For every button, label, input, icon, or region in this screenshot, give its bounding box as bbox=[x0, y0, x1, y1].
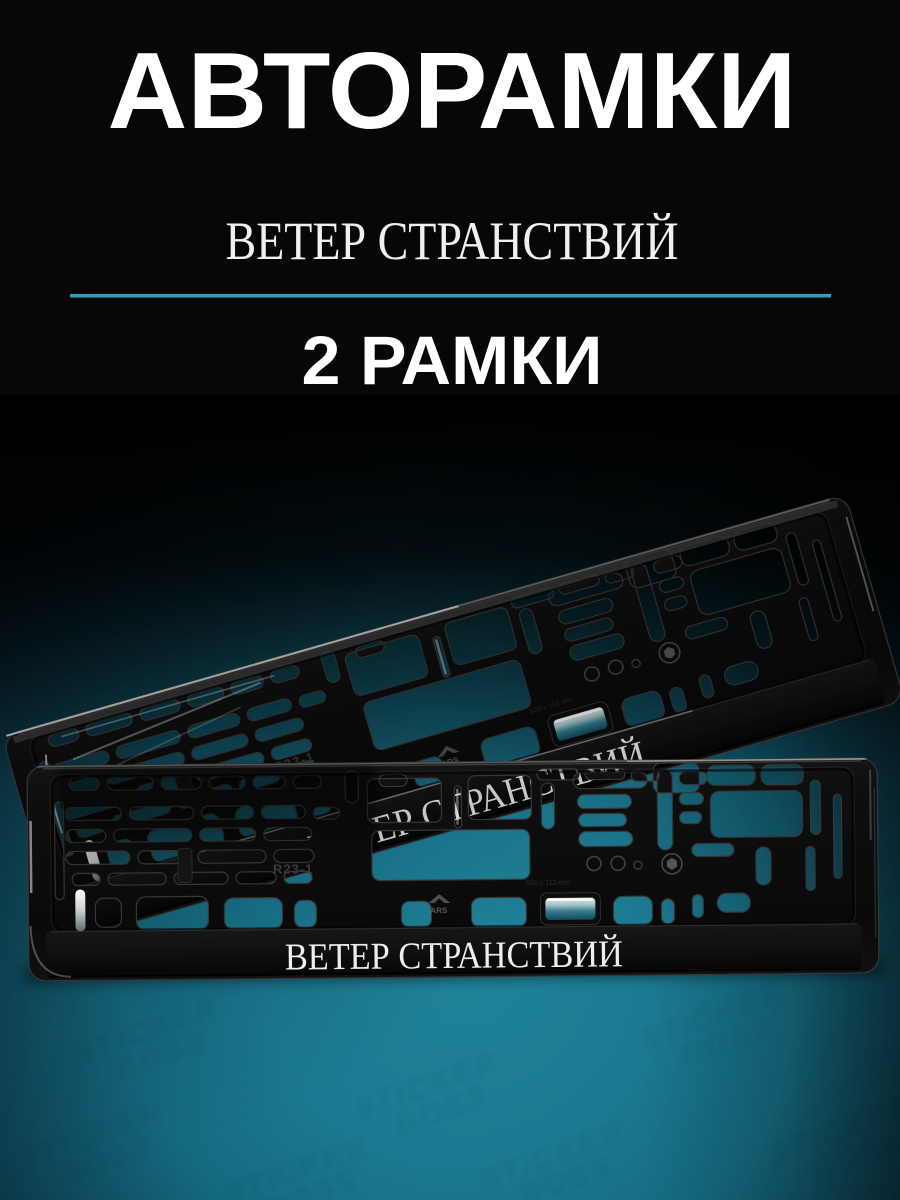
svg-text:ВЕТЕР СТРАНСТВИЙ: ВЕТЕР СТРАНСТВИЙ bbox=[226, 211, 679, 271]
svg-text:2 РАМКИ: 2 РАМКИ bbox=[302, 322, 603, 399]
svg-text:АВТОРАМКИ: АВТОРАМКИ bbox=[108, 30, 797, 152]
